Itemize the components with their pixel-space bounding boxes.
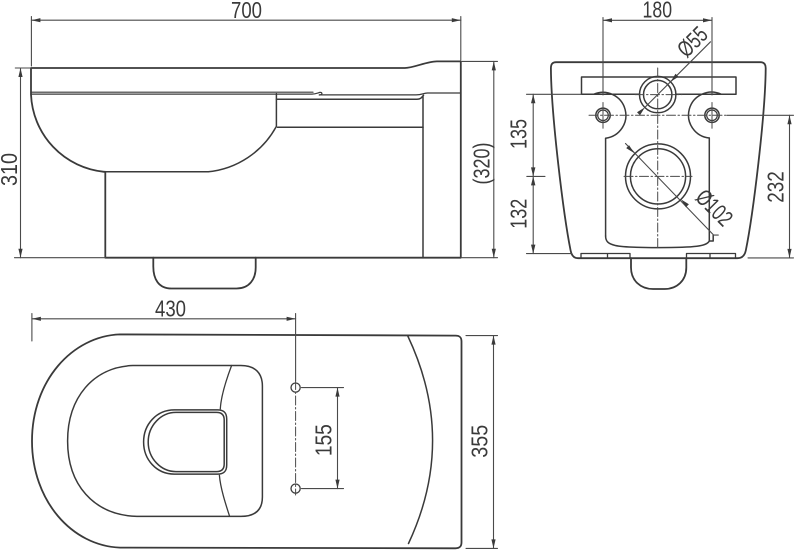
svg-text:310: 310 — [0, 153, 22, 186]
svg-text:Ø102: Ø102 — [691, 184, 738, 231]
svg-text:Ø55: Ø55 — [672, 21, 713, 62]
svg-text:430: 430 — [155, 296, 186, 322]
svg-text:132: 132 — [506, 199, 532, 229]
svg-text:232: 232 — [763, 171, 789, 203]
svg-text:155: 155 — [310, 424, 336, 456]
svg-text:355: 355 — [466, 425, 492, 458]
svg-text:180: 180 — [643, 0, 673, 23]
svg-text:700: 700 — [231, 0, 262, 23]
svg-text:(320): (320) — [468, 143, 494, 185]
svg-text:135: 135 — [506, 119, 532, 149]
